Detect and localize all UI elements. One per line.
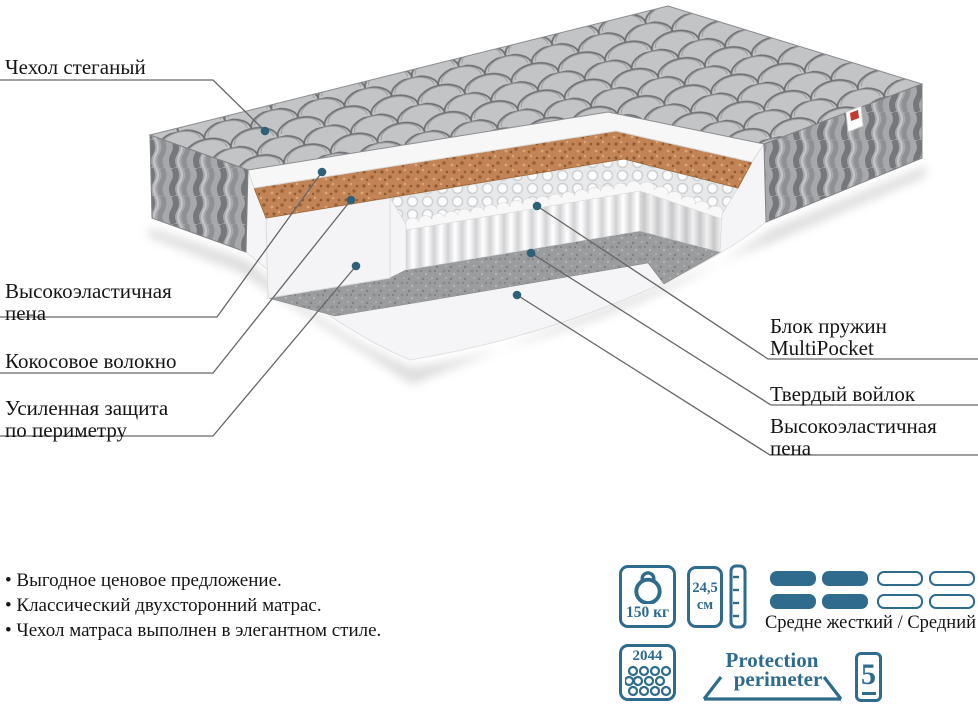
callout-label-line: пена xyxy=(5,302,172,324)
callout-label-line: пена xyxy=(770,437,937,459)
feature-text: Классический двухсторонний матрас. xyxy=(16,595,321,616)
callout-label-springs: Блок пружин MultiPocket xyxy=(770,315,887,359)
ruler-icon xyxy=(729,564,747,629)
callout-dot-felt xyxy=(527,249,536,258)
springs-count-badge: 2044 xyxy=(619,644,676,701)
height-unit: см xyxy=(697,597,713,614)
callout-label-felt: Твердый войлок xyxy=(770,383,915,405)
feature-list: Выгодное ценовое предложение. Классическ… xyxy=(5,568,381,643)
perimeter-trapezoid-icon xyxy=(698,648,846,704)
callout-label-line: Блок пружин xyxy=(770,315,887,337)
callout-label-cover: Чехол стеганый xyxy=(5,56,146,78)
firmness-bar-outlined xyxy=(929,571,975,586)
firmness-bar-outlined xyxy=(877,571,923,586)
firmness-label: Средне жесткий / Средний xyxy=(762,613,976,634)
callout-dot-perimeter xyxy=(352,262,361,271)
firmness-bar-filled xyxy=(822,594,868,609)
height-badge: 24,5 см xyxy=(687,566,723,628)
callout-label-foam-left: Высокоэластичная пена xyxy=(5,280,172,324)
springs-grid-icon xyxy=(625,665,671,697)
feature-text: Чехол матраса выполнен в элегантном стил… xyxy=(16,620,381,641)
callout-label-line: Кокосовое волокно xyxy=(5,350,176,372)
callout-label-line: Усиленная защита xyxy=(5,397,168,419)
callout-label-foam-right: Высокоэластичная пена xyxy=(770,415,937,459)
callout-label-line: MultiPocket xyxy=(770,337,887,359)
callout-label-line: Чехол стеганый xyxy=(5,56,146,78)
callout-dot-foam-left xyxy=(318,168,327,177)
callout-label-line: по периметру xyxy=(5,419,168,441)
feature-text: Выгодное ценовое предложение. xyxy=(16,570,281,591)
callout-label-line: Высокоэластичная xyxy=(770,415,937,437)
callout-dot-cover xyxy=(261,127,270,136)
feature-item: Чехол матраса выполнен в элегантном стил… xyxy=(5,618,381,643)
springs-count-value: 2044 xyxy=(633,648,663,665)
callout-label-perimeter: Усиленная защита по периметру xyxy=(5,397,168,441)
feature-item: Классический двухсторонний матрас. xyxy=(5,593,381,618)
callout-dot-coconut xyxy=(347,196,356,205)
warranty-badge: 5 xyxy=(855,652,882,702)
max-weight-badge: 150 кг xyxy=(619,565,676,628)
kettlebell-icon xyxy=(628,569,668,604)
callout-label-line: Высокоэластичная xyxy=(5,280,172,302)
firmness-bar-filled xyxy=(770,571,816,586)
callout-dot-springs xyxy=(533,202,542,211)
mattress-infographic: Чехол стеганый Высокоэластичная пена Кок… xyxy=(0,0,978,708)
firmness-bar-filled xyxy=(770,594,816,609)
max-weight-value: 150 кг xyxy=(626,604,669,622)
callout-label-line: Твердый войлок xyxy=(770,383,915,405)
firmness-bar-outlined xyxy=(877,594,923,609)
feature-item: Выгодное ценовое предложение. xyxy=(5,568,381,593)
protection-perimeter-badge: Protection perimeter xyxy=(698,648,846,704)
warranty-number: 5 xyxy=(858,655,879,695)
firmness-bar-outlined xyxy=(929,594,975,609)
callout-dot-foam-right xyxy=(513,291,522,300)
height-value: 24,5 xyxy=(692,580,717,597)
firmness-bar-filled xyxy=(822,571,868,586)
callout-label-coconut: Кокосовое волокно xyxy=(5,350,176,372)
warranty-underline xyxy=(862,692,876,695)
